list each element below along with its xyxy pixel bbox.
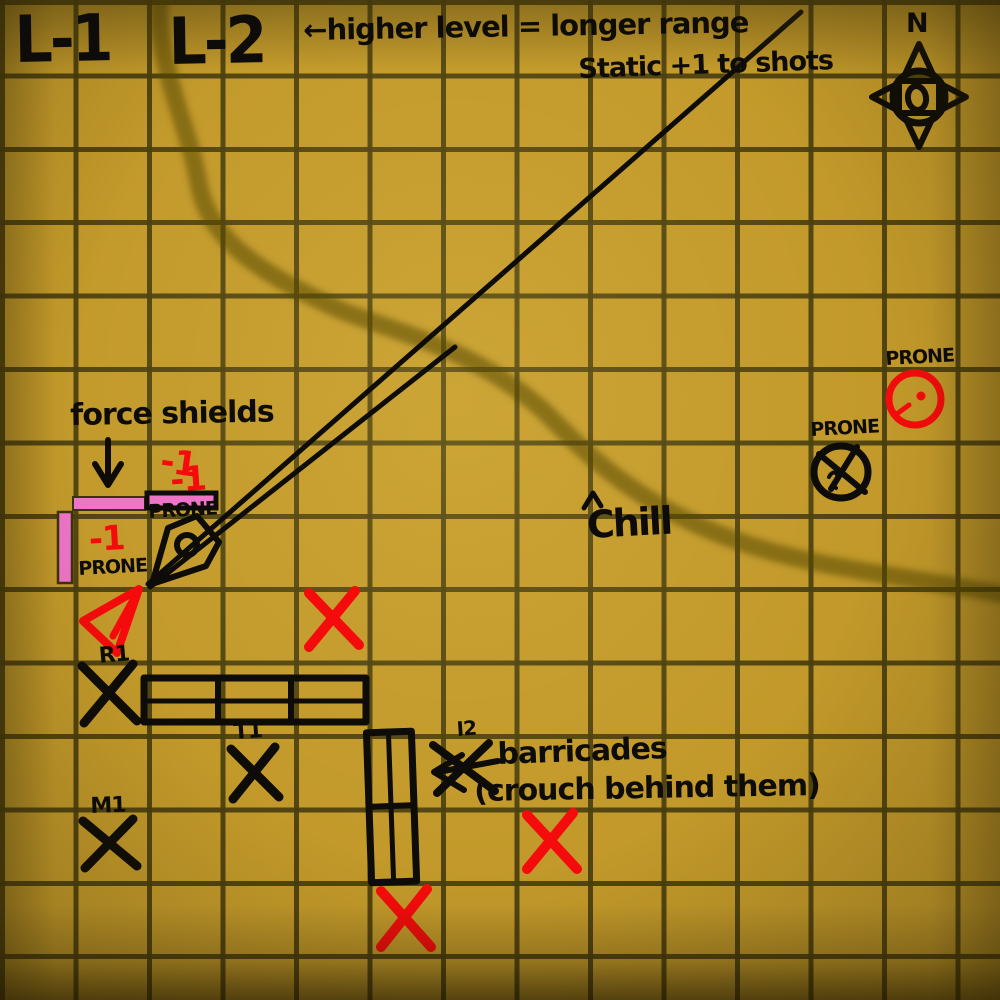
compass-north-label: N [906,10,929,37]
river-path [159,0,1000,596]
prone-label-far-right: PRONE [885,346,954,369]
force-shields-arrow [95,440,121,485]
level-1-label: L-1 [14,6,111,73]
chill-annotation: Chill [586,502,672,544]
red-x-mark-3 [381,889,431,947]
prone-label-shield-top: PRONE [148,499,217,522]
force-shields-label: force shields [70,397,274,431]
level-2-label: L-2 [168,8,265,75]
shield-penalty-mid: -1 [169,462,207,498]
unit-label-i2: I2 [456,718,477,739]
force-shield-bar-vertical [58,512,72,583]
prone-black-crossed-token [814,446,868,498]
prone-red-circle-token [889,373,941,425]
shield-penalty-left: -1 [88,521,126,557]
range-rule-note-line1: ←higher level = longer range [303,8,749,45]
unit-label-r1: R1 [98,643,130,668]
barricades-note-title: barricades [497,734,667,770]
compass-rose [872,44,966,147]
prone-label-mid-right: PRONE [810,417,879,440]
red-x-mark-2 [527,813,577,869]
line-of-sight-long [148,12,801,584]
x-mark-m1 [83,819,137,868]
unit-label-t1: T1 [233,720,263,744]
barricade-vertical [366,731,416,882]
barricade-horizontal [144,678,366,722]
prone-label-shield-left: PRONE [78,556,147,579]
barricades-note-sub: (crouch behind them) [474,771,820,807]
unit-label-m1: M1 [90,795,126,818]
x-mark-r1 [82,664,137,723]
tactical-grid-map: L-1 L-2 ←higher level = longer range Sta… [0,0,1000,1000]
force-shield-bar-horizontal-left [73,497,145,510]
red-x-mark-1 [309,591,359,647]
x-mark-t1 [231,747,279,799]
